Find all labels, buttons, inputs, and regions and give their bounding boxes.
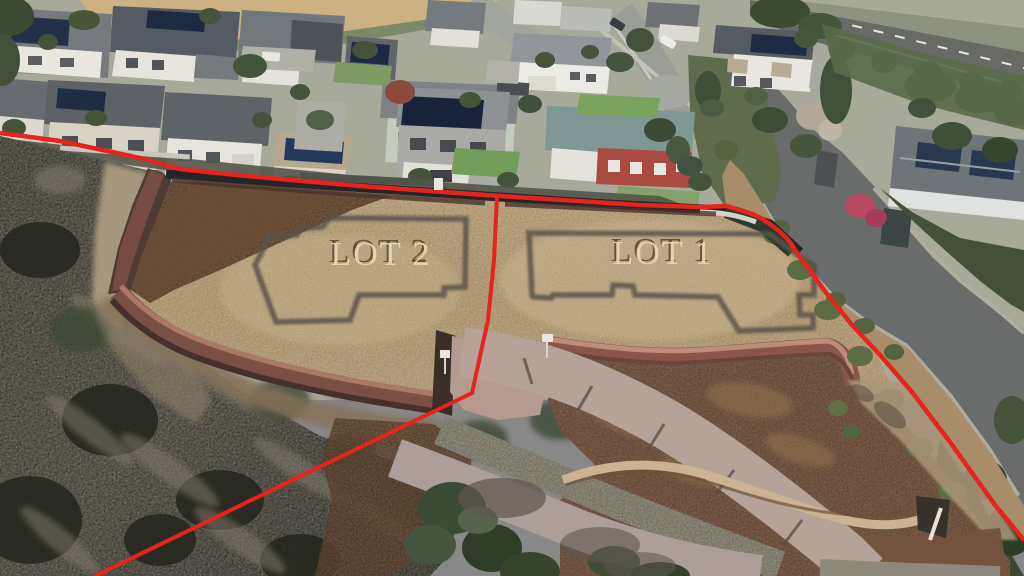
svg-text:LOT 1: LOT 1 [613, 235, 714, 272]
svg-text:LOT 2: LOT 2 [331, 236, 432, 273]
